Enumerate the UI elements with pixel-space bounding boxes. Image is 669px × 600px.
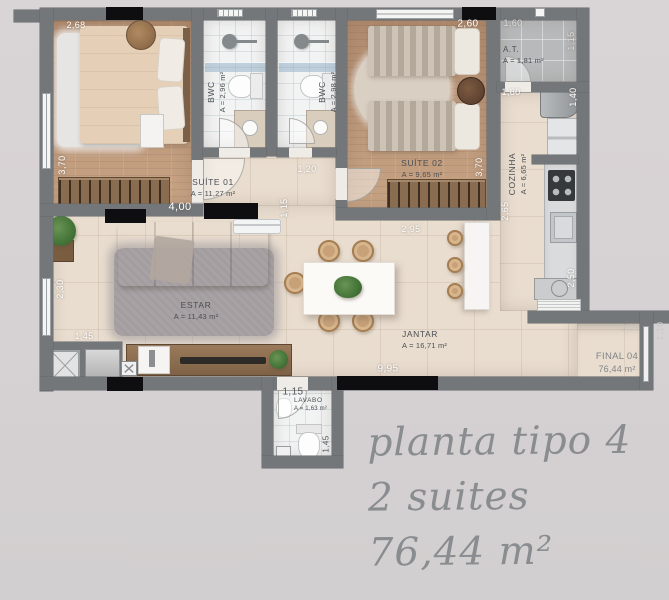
wall — [487, 8, 500, 220]
x-icon — [52, 352, 78, 379]
room-area: A = 9,65 m² — [401, 169, 443, 180]
soundbar-icon — [180, 357, 266, 364]
dimension-label: 1,60 — [501, 87, 520, 97]
room-name: SUÍTE 02 — [401, 158, 443, 169]
shower-glass — [205, 62, 266, 72]
single-bed-icon — [368, 26, 456, 76]
wall — [203, 148, 219, 157]
vent-window — [217, 9, 243, 17]
room-name: JANTAR — [402, 329, 447, 340]
shower-glass — [279, 62, 336, 72]
sink-basin — [554, 216, 573, 239]
plant-icon — [269, 350, 288, 369]
dimension-label: 1,20 — [297, 164, 316, 174]
unit-area: 76,44 m² — [596, 363, 638, 375]
room-label-estar: ESTAR A = 11,43 m² — [174, 300, 219, 322]
dimension-label: 1,10 — [655, 321, 665, 340]
dimension-label: 2,30 — [55, 279, 65, 298]
wardrobe-icon — [387, 179, 486, 211]
dimension-label: 2,65 — [500, 201, 510, 220]
wall — [577, 8, 589, 316]
stool-icon — [447, 230, 463, 246]
room-area: A = 1,81 m² — [503, 55, 544, 66]
wall — [336, 208, 500, 220]
window — [42, 278, 51, 336]
chair-icon — [352, 240, 374, 262]
wall — [250, 148, 266, 157]
single-bed-icon — [368, 101, 456, 151]
bar-counter — [464, 222, 490, 310]
bench-icon — [140, 114, 164, 148]
nightstand-icon — [126, 20, 156, 50]
room-label-bwc2: BWC A = 2,98 m² — [317, 72, 339, 113]
black-window — [107, 377, 143, 391]
room-name: COZINHA — [507, 153, 518, 195]
wall — [266, 8, 277, 156]
dimension-label: 2,95 — [401, 224, 420, 234]
black-beam — [204, 203, 258, 219]
window — [376, 9, 454, 19]
dimension-label: 3,70 — [474, 157, 484, 176]
wall — [532, 155, 578, 164]
room-label-jantar: JANTAR A = 16,71 m² — [402, 329, 447, 351]
room-area: A = 11,27 m² — [191, 188, 236, 199]
black-window — [105, 209, 146, 223]
vent-window — [291, 9, 317, 17]
wall — [332, 377, 343, 468]
room-area: A = 6,65 m² — [518, 153, 529, 195]
dimension-label: 4,00 — [168, 201, 191, 213]
toilet-icon — [228, 75, 252, 98]
room-name: BWC — [317, 72, 328, 113]
room-area: A = 1,63 m² — [294, 405, 327, 413]
black-window — [106, 7, 143, 20]
dimension-label: 2,50 — [566, 268, 576, 287]
railing — [643, 326, 649, 382]
room-name: LAVABO — [294, 397, 327, 405]
window — [42, 93, 51, 169]
shower-arm — [235, 40, 257, 43]
sink-icon — [313, 120, 328, 135]
chair-icon — [318, 240, 340, 262]
window — [535, 8, 545, 17]
room-area: A = 2,98 m² — [328, 72, 339, 113]
wall — [192, 8, 203, 160]
room-label-cozinha: COZINHA A = 6,65 m² — [507, 153, 529, 195]
x-icon — [122, 362, 136, 375]
door-opening — [336, 168, 347, 200]
dimension-label: 3,70 — [57, 155, 67, 174]
floor-plan: 2,68 3,70 4,00 1,20 1,15 2,60 3,70 2,95 … — [0, 0, 669, 600]
shower-arm — [307, 40, 329, 43]
wall — [312, 148, 336, 157]
room-name: BWC — [206, 72, 217, 113]
dimension-label: 1,15 — [566, 31, 576, 50]
stove-icon — [548, 170, 575, 201]
room-label-suite01: SUÍTE 01 A = 11,27 m² — [191, 177, 236, 199]
room-area: A = 16,71 m² — [402, 340, 447, 351]
dimension-label: 2,68 — [66, 20, 85, 30]
dimension-label: 1,40 — [568, 87, 578, 106]
dimension-label: 9,95 — [377, 364, 398, 375]
caption-line-2: 2 suites — [368, 467, 669, 525]
plant-icon — [334, 276, 362, 298]
wall — [262, 456, 343, 468]
wall — [14, 10, 42, 22]
room-name: ESTAR — [174, 300, 219, 311]
caption: planta tipo 4 2 suites 76,44 m² — [367, 412, 669, 580]
wall — [277, 148, 289, 157]
unit-name: FINAL 04 — [596, 351, 638, 363]
black-window — [337, 376, 438, 390]
shaft-box — [121, 361, 137, 376]
dimension-label: 2,60 — [457, 19, 478, 30]
sculpture-icon — [149, 350, 155, 367]
dimension-label: 1,45 — [322, 435, 331, 452]
room-label-lavabo: LAVABO A = 1,63 m² — [294, 397, 327, 413]
room-area: A = 2,96 m² — [217, 72, 228, 113]
room-name: A.T. — [503, 44, 544, 55]
pillow — [156, 37, 185, 83]
ac-unit-icon — [233, 219, 281, 234]
dimension-label: 1,60 — [503, 18, 522, 28]
toilet-tank — [250, 73, 263, 99]
caption-line-3: 76,44 m² — [368, 522, 669, 580]
room-area: A = 11,43 m² — [174, 311, 219, 322]
wall — [262, 377, 273, 468]
room-label-at: A.T. A = 1,81 m² — [503, 44, 544, 66]
pillow — [454, 28, 480, 75]
ac-condenser-icon — [537, 299, 581, 311]
dimension-label: 1,15 — [282, 387, 303, 398]
nightstand-icon — [457, 77, 485, 105]
room-label-bwc1: BWC A = 2,96 m² — [206, 72, 228, 113]
stool-icon — [447, 257, 463, 273]
dimension-label: 1,45 — [74, 331, 93, 341]
stool-icon — [447, 283, 463, 299]
sofa-throw — [149, 235, 195, 284]
room-name: SUÍTE 01 — [191, 177, 236, 188]
room-label-suite02: SUÍTE 02 A = 9,65 m² — [401, 158, 443, 180]
unit-label-final04: FINAL 04 76,44 m² — [596, 351, 638, 375]
door-opening — [289, 148, 312, 157]
dimension-label: 2,25 — [620, 323, 639, 333]
dimension-label: 1,15 — [279, 198, 289, 217]
caption-line-1: planta tipo 4 — [367, 412, 668, 470]
oven-icon — [547, 118, 580, 158]
pillow — [454, 103, 480, 150]
door-opening — [219, 148, 250, 157]
